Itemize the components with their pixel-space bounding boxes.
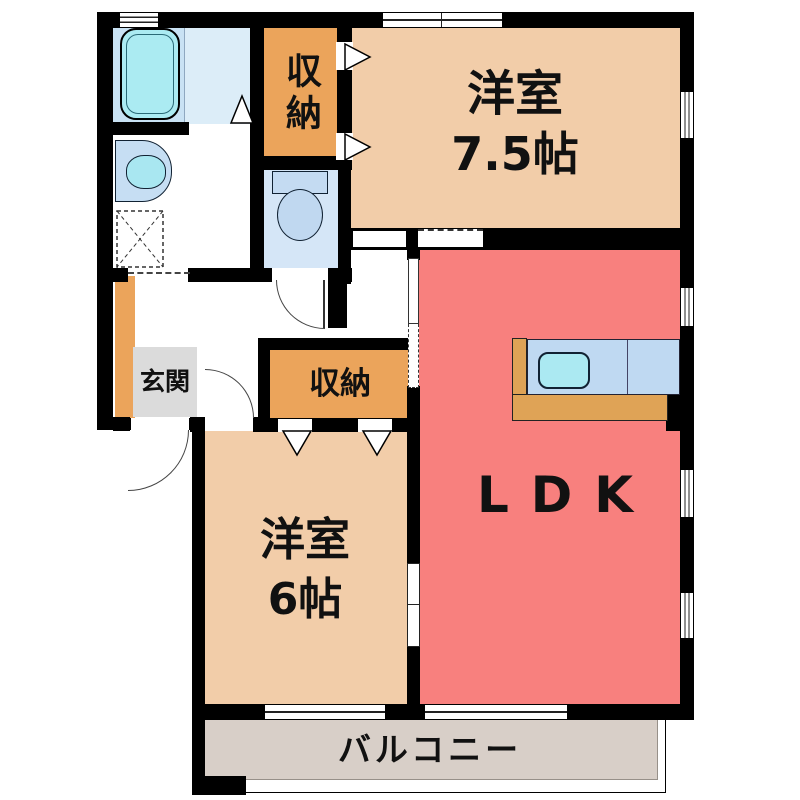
wall-segment — [258, 338, 415, 350]
wall-segment — [188, 268, 272, 282]
label-closet-top: 収納 — [268, 38, 332, 150]
closet-door-triangle — [344, 132, 372, 162]
room-western-6 — [198, 425, 412, 713]
sliding-door-hall-ldk — [408, 258, 419, 324]
floor-plan: 収納 洋室 7.5帖 玄関 収納 洋室 6帖 LDK バルコニー — [0, 0, 800, 800]
wall-segment — [190, 417, 205, 432]
wall-segment — [666, 407, 692, 431]
closet-door-triangle — [362, 431, 392, 457]
window — [120, 13, 158, 27]
wall-segment — [407, 646, 420, 716]
wall-segment — [338, 156, 351, 284]
label-ldk: LDK — [430, 462, 680, 528]
door-leaf-toilet — [323, 280, 325, 328]
kitchen-counter-divider — [627, 340, 628, 394]
label-western-6-size: 6帖 — [200, 573, 410, 627]
toilet-bowl — [277, 189, 323, 241]
washbasin-bowl — [126, 155, 166, 189]
door-swing-arc-entrance — [128, 430, 189, 491]
label-western-6-name: 洋室 — [200, 513, 410, 567]
door-swing-arc-room6 — [205, 369, 254, 418]
closet-door-triangle — [282, 431, 312, 457]
label-western-75-size: 7.5帖 — [395, 128, 635, 180]
bathtub-icon — [120, 28, 180, 120]
closet-door-triangle — [344, 42, 372, 72]
wall-segment — [97, 268, 128, 282]
window-tick — [441, 13, 442, 27]
washroom-opening-dashed — [128, 272, 190, 274]
window — [681, 593, 693, 638]
window — [681, 288, 693, 326]
wall-segment — [192, 776, 246, 795]
washing-machine-pan-icon — [116, 210, 164, 268]
washbasin-icon — [115, 140, 172, 202]
door-swing-arc-toilet — [276, 280, 325, 329]
entrance-door-threshold — [130, 418, 190, 430]
window — [681, 92, 693, 138]
sliding-door-75-entry — [352, 230, 407, 248]
window — [681, 470, 693, 517]
window-balcony-ldk — [425, 705, 567, 719]
wall-segment — [97, 12, 113, 430]
wall-segment — [328, 282, 347, 328]
entrance-step-strip — [115, 276, 135, 419]
bath-door-triangle — [230, 94, 254, 124]
label-western-75-name: 洋室 — [395, 68, 635, 120]
window — [383, 13, 502, 27]
kitchen-counter-wood — [512, 394, 668, 421]
wall-segment — [113, 122, 189, 135]
room6-door-opening — [205, 417, 253, 431]
label-entrance: 玄関 — [135, 363, 195, 401]
bathtub-inner-rim — [126, 34, 174, 114]
wall-segment — [253, 417, 270, 432]
wall-segment — [328, 268, 352, 282]
bath-floor-divider — [184, 20, 185, 124]
label-closet-mid: 収納 — [270, 361, 410, 407]
sliding-door-75-ldk — [418, 229, 483, 247]
wall-segment — [113, 417, 130, 431]
label-balcony: バルコニー — [250, 729, 610, 771]
kitchen-sink-icon — [538, 352, 590, 389]
wall-segment — [250, 12, 264, 270]
window-balcony-6 — [265, 705, 385, 719]
